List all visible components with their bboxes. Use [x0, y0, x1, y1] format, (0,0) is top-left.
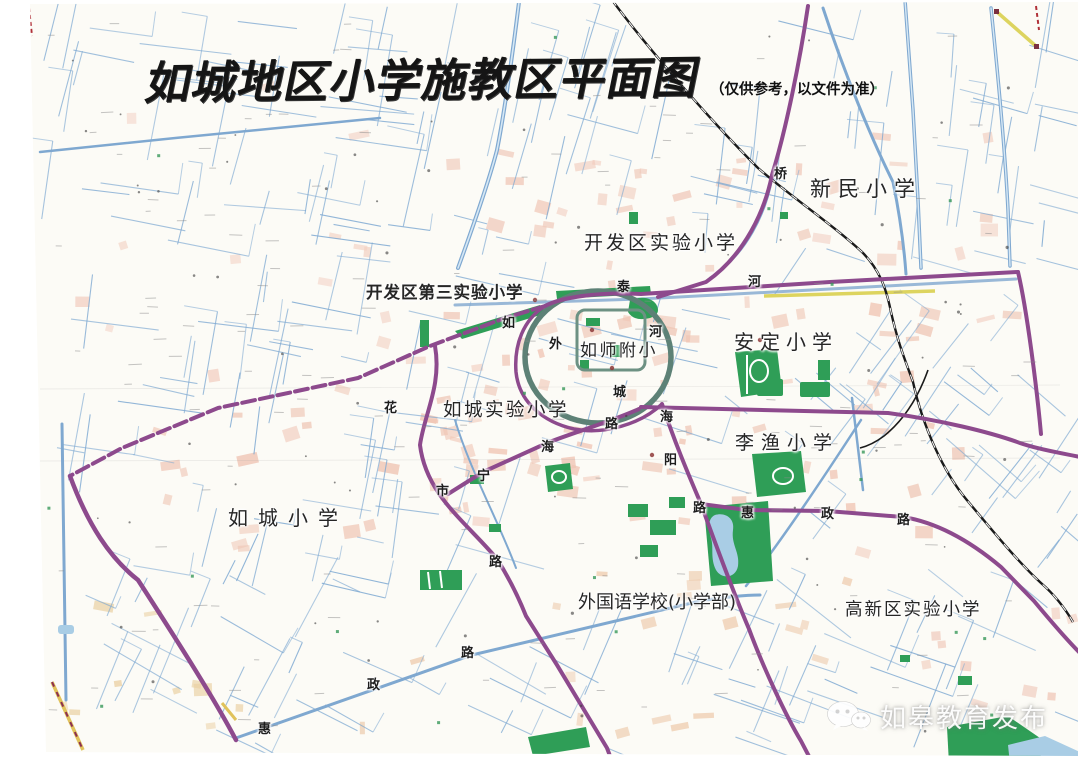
district-label-gaoxinqu: 高新区实验小学 — [845, 596, 982, 621]
road-label: 桥 — [774, 163, 787, 182]
map-title-note: （仅供参考，以文件为准） — [710, 78, 884, 99]
road-label: 路 — [489, 551, 502, 570]
map-title: 如城地区小学施教区平面图 — [141, 41, 707, 112]
district-label-waiguoyu: 外国语学校(小学部) — [578, 588, 736, 614]
road-label: 花 — [384, 397, 397, 416]
district-label-rucheng: 如城小学 — [228, 502, 348, 531]
road-label: 泰 — [617, 276, 630, 295]
road-label: 路 — [693, 497, 706, 516]
road-label: 海 — [541, 436, 554, 455]
moat-label: 外 — [549, 333, 562, 352]
district-label-rucheng-shiyan: 如城实验小学 — [443, 396, 569, 422]
moat-label: 城 — [613, 381, 626, 400]
road-label: 路 — [605, 413, 618, 432]
road-label: 海 — [660, 406, 673, 425]
road-label: 政 — [367, 674, 380, 693]
road-label: 政 — [821, 503, 834, 522]
road-label: 惠 — [258, 718, 271, 737]
watermark-text: 如皋教育发布 — [880, 698, 1048, 735]
road-label: 惠 — [741, 502, 754, 521]
district-label-kaifaqu-shiyan: 开发区实验小学 — [584, 228, 738, 255]
district-label-liyu: 李渔小学 — [735, 428, 839, 455]
district-label-kaifaqu-disan: 开发区第三实验小学 — [366, 279, 524, 303]
road-label: 河 — [748, 271, 761, 290]
road-label: 路 — [461, 642, 474, 661]
road-label: 阳 — [664, 449, 677, 468]
district-label-rushifuxiao: 如师附小 — [580, 336, 658, 361]
map-canvas — [0, 0, 1080, 764]
district-label-anding: 安定小学 — [734, 326, 838, 355]
moat-label: 河 — [649, 321, 662, 340]
district-label-xinmin: 新民小学 — [810, 173, 922, 203]
road-label: 宁 — [477, 465, 490, 484]
road-label: 路 — [897, 509, 910, 528]
road-label: 市 — [436, 480, 449, 499]
scanned-school-district-map: 如城地区小学施教区平面图 （仅供参考，以文件为准） 新民小学 开发区实验小学 开… — [0, 0, 1080, 764]
pond — [58, 625, 74, 634]
wechat-icon — [826, 700, 872, 734]
road-label: 如 — [502, 312, 515, 331]
watermark: 如皋教育发布 — [826, 698, 1048, 735]
